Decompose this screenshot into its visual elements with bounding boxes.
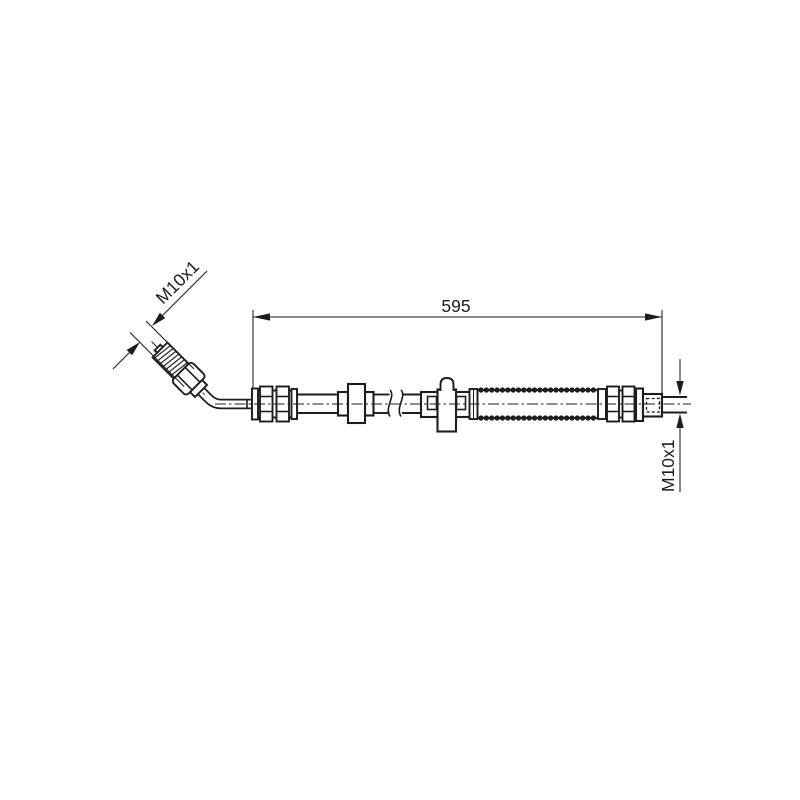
right-thread-label: M10x1 bbox=[658, 439, 678, 492]
female-fitting-body bbox=[643, 394, 662, 417]
bracket-tab-bump bbox=[441, 378, 454, 391]
bracket-tab bbox=[438, 390, 457, 432]
technical-drawing-canvas: 595 M10x1 M10x1 bbox=[0, 0, 800, 800]
drawing-background bbox=[0, 0, 800, 800]
dimension-595-label: 595 bbox=[441, 296, 470, 316]
